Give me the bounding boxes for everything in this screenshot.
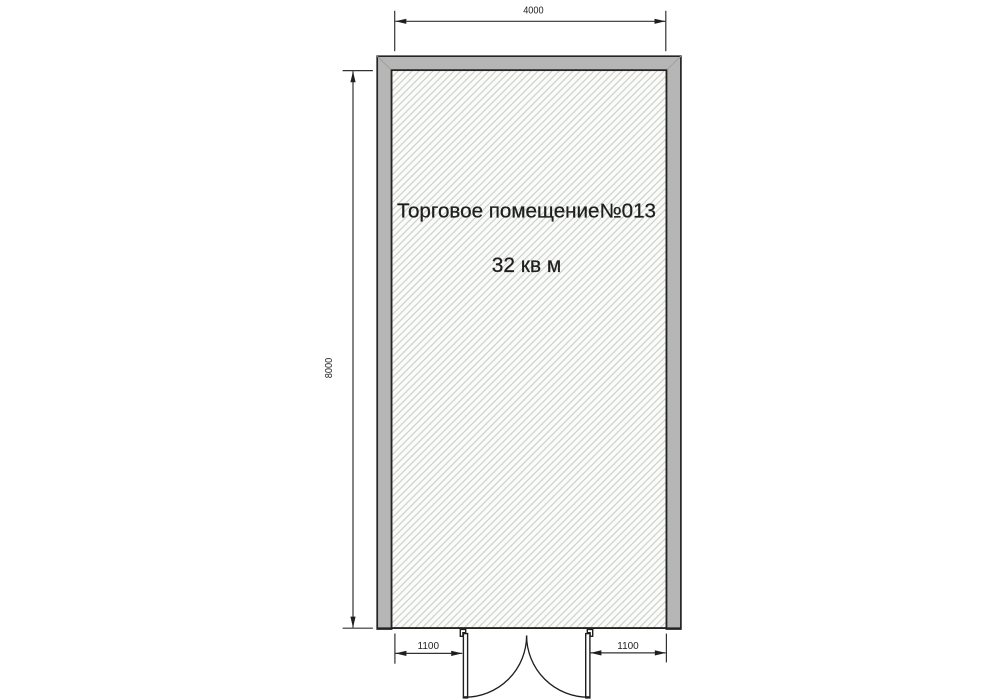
- svg-text:1100: 1100: [418, 641, 440, 652]
- svg-text:8000: 8000: [324, 357, 335, 378]
- svg-text:32 кв м: 32 кв м: [492, 254, 562, 277]
- svg-text:1100: 1100: [617, 641, 639, 652]
- svg-text:Торговое помещение№013: Торговое помещение№013: [397, 200, 656, 222]
- svg-text:4000: 4000: [523, 6, 544, 17]
